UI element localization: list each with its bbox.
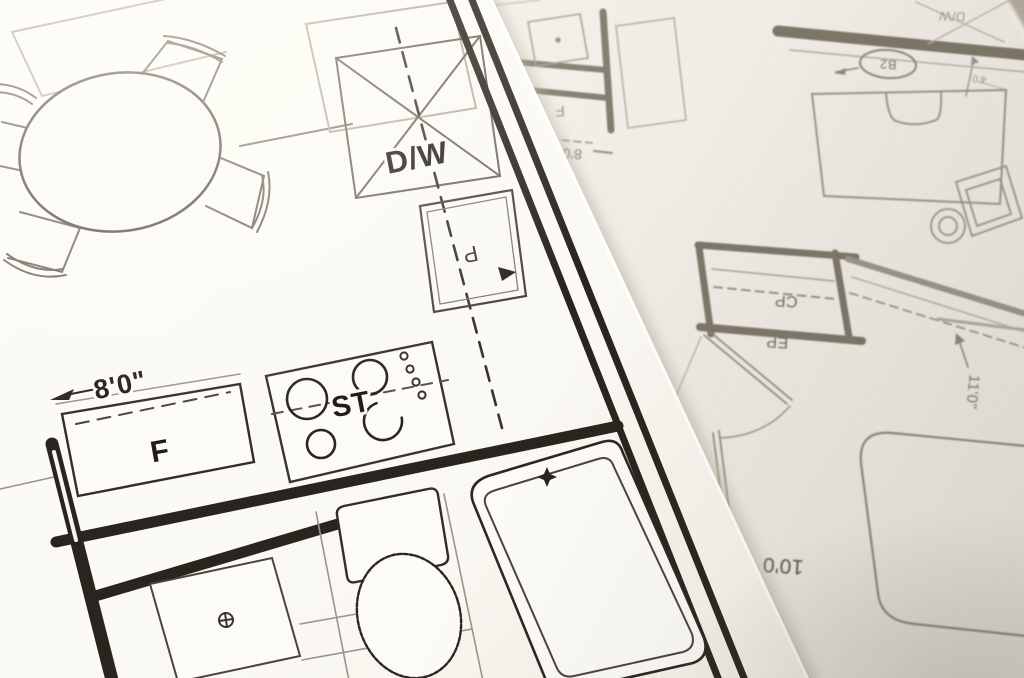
closet-cp-label: CP: [774, 291, 798, 309]
under-4ft-label: 4'0: [971, 73, 986, 85]
under-dw-label: D/W: [938, 9, 966, 25]
under-fridge-label: F: [555, 102, 565, 119]
room-tag-label: B2: [879, 57, 897, 73]
cabinet-knob-dot: [555, 37, 560, 42]
shower-drain: [219, 613, 233, 627]
closet-ep-label: EP: [765, 332, 788, 350]
blueprint-photo: F 8'0 D/W 4'0 B2 CP EP 11'0" 10'0: [0, 0, 1024, 678]
floor-plan-drawing: F 8'0 D/W 4'0 B2 CP EP 11'0" 10'0: [0, 0, 1024, 678]
dim-11ft-label: 11'0": [962, 374, 983, 410]
